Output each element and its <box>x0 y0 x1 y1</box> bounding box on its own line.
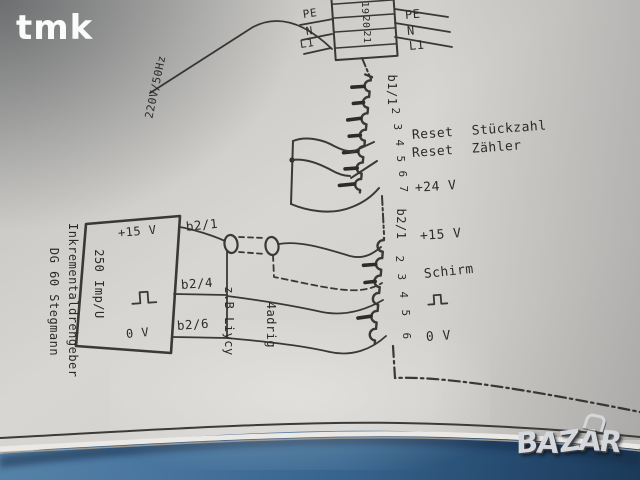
cable-cores-text: 4adrig <box>264 285 278 357</box>
tmk-watermark: tmk <box>16 8 93 48</box>
wire-label-b2-6: b2/6 <box>177 317 210 333</box>
paper-vignette-topleft <box>0 0 430 330</box>
block-right-label-l1: L1 <box>408 38 425 53</box>
b2-pin-6: 6 <box>399 330 413 342</box>
photo-of-schematic: 220V/50Hz PE N L1 PE N L1 18 19 20 21 b1… <box>0 0 640 480</box>
encoder-label-0v: 0 V <box>125 325 149 341</box>
b1-pin-3: 3 <box>390 121 404 133</box>
cable-type-text: z.B Liycy <box>222 285 236 357</box>
schematic-drawing <box>0 0 640 480</box>
b2-pin-5: 5 <box>398 307 412 319</box>
b2-pin-4: 4 <box>396 289 410 301</box>
block-cell-20: 20 <box>358 14 372 30</box>
b1-pin-2: 2 <box>388 105 402 117</box>
encoder-name-line2: DG 60 Stegmann <box>47 247 61 357</box>
label-15v-strip: +15 V <box>420 227 463 244</box>
b1-pin-7: 7 <box>396 183 410 195</box>
cable-type-label: 4adrig z.B Liycy <box>208 285 306 357</box>
logo-letter-r: R <box>597 424 624 460</box>
logo-letter-b: B <box>516 424 537 460</box>
b1-pin-6: 6 <box>395 168 409 180</box>
logo-letter-a1: A <box>535 425 560 459</box>
strip-b2-header: b2/1 <box>394 207 408 241</box>
b2-pin-2: 2 <box>392 253 406 265</box>
label-0v-strip: 0 V <box>426 329 452 345</box>
block-left-label-l1: L1 <box>299 36 315 52</box>
b1-pin-5: 5 <box>393 153 407 165</box>
bazar-logo: BAZAR <box>515 422 623 460</box>
cable-jacket-top <box>239 237 265 238</box>
strip-b1-header: b1/1 <box>385 73 399 107</box>
b1-pin-4: 4 <box>392 137 406 149</box>
block-left-label-pe: PE <box>302 6 318 22</box>
encoder-resolution: 250 Imp/U <box>92 249 106 319</box>
block-right-label-n: N <box>406 23 415 38</box>
label-24v: +24 V <box>415 179 458 196</box>
block-right-label-pe: PE <box>404 7 421 22</box>
encoder-name-line1: Inkrementaldrehgeber <box>66 223 80 373</box>
b2-pin-3: 3 <box>394 271 408 283</box>
block-cell-21: 21 <box>359 29 373 45</box>
